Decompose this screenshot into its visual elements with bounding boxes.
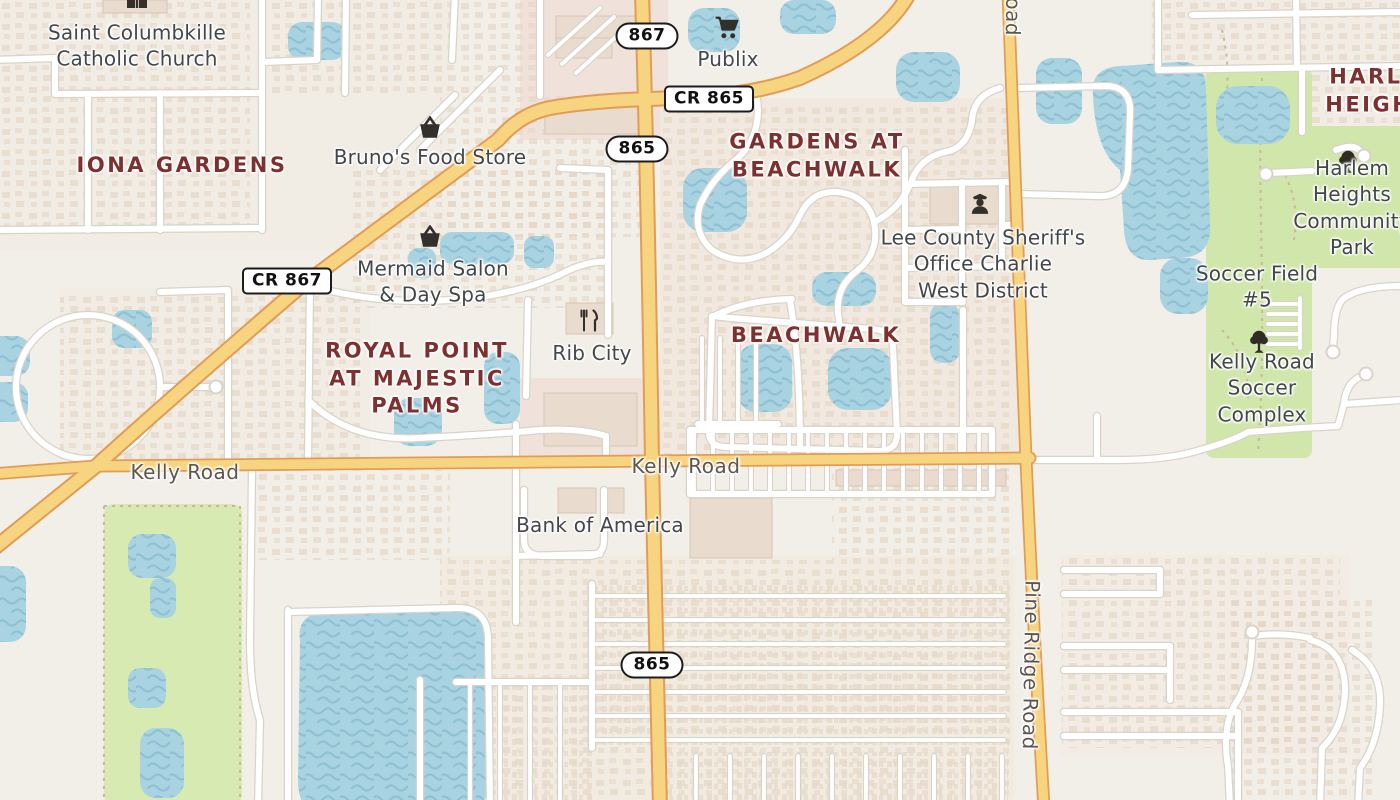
map-tiles [0,0,1400,800]
map-canvas[interactable]: Saint Columbkille Catholic ChurchIONA GA… [0,0,1400,800]
